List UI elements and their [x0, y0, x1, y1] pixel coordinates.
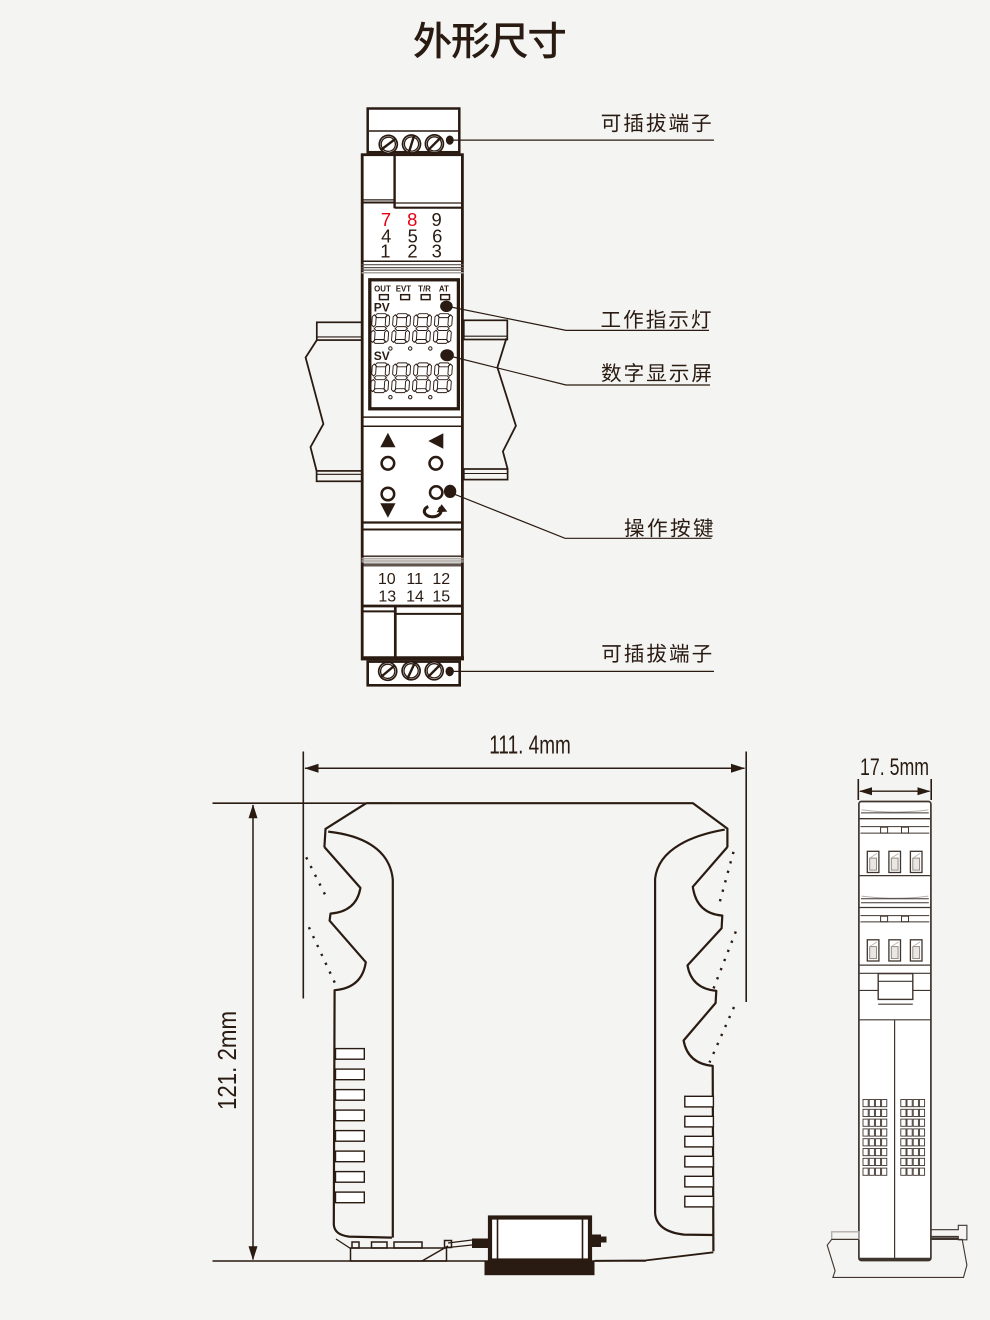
svg-text:PV: PV	[374, 301, 390, 315]
svg-text:14: 14	[406, 588, 424, 605]
svg-text:11: 11	[406, 571, 423, 588]
svg-text:17. 5mm: 17. 5mm	[860, 754, 929, 781]
svg-text:15: 15	[432, 588, 450, 605]
svg-text:10: 10	[378, 571, 396, 588]
svg-text:111. 4mm: 111. 4mm	[489, 729, 571, 759]
svg-text:SV: SV	[374, 349, 390, 363]
svg-text:T/R: T/R	[418, 284, 431, 293]
svg-text:2: 2	[407, 241, 417, 262]
svg-text:3: 3	[432, 241, 442, 262]
svg-text:AT: AT	[439, 284, 449, 293]
svg-text:1: 1	[380, 241, 390, 262]
svg-text:13: 13	[378, 588, 396, 605]
svg-text:OUT: OUT	[374, 284, 391, 293]
svg-text:EVT: EVT	[396, 284, 412, 293]
svg-text:121. 2mm: 121. 2mm	[212, 1011, 242, 1110]
svg-text:12: 12	[432, 571, 450, 588]
